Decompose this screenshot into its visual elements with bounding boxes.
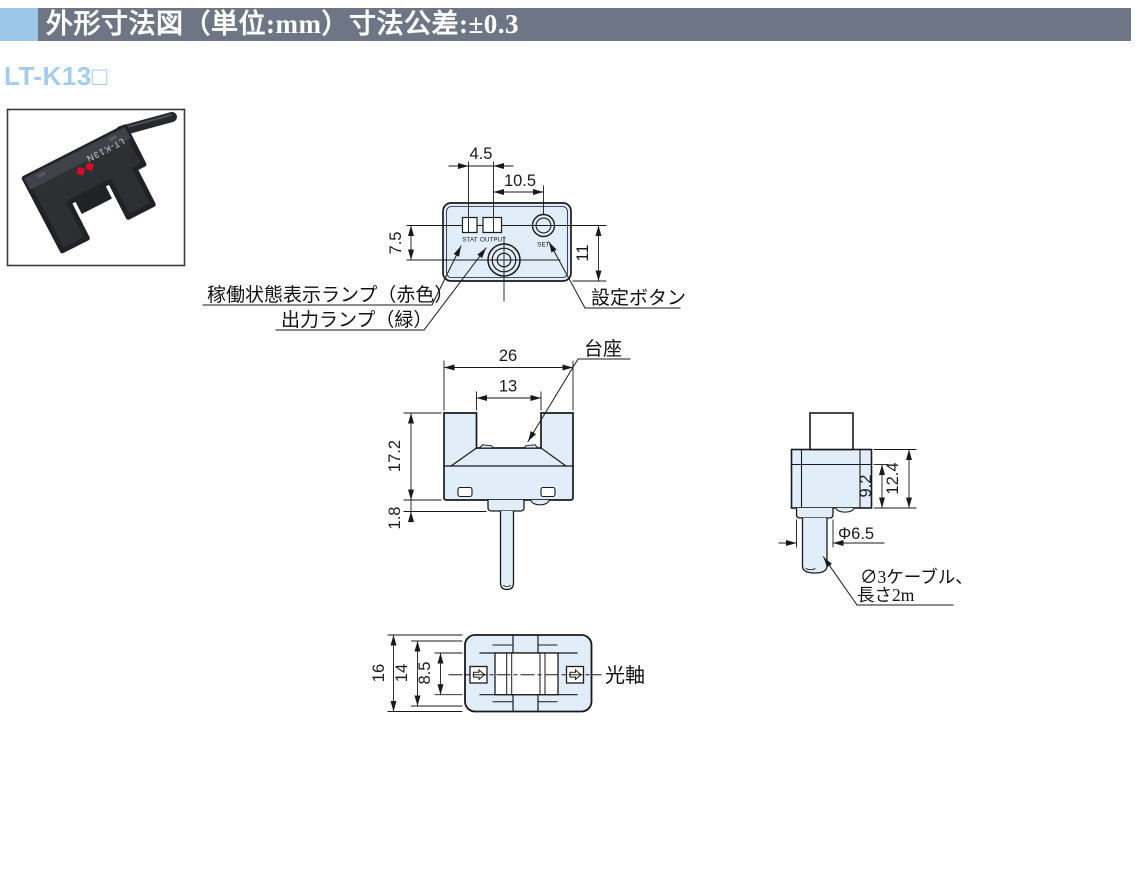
dim-7-5: 7.5 <box>387 232 405 255</box>
label-output-lamp: 出力ランプ（緑） <box>281 309 432 331</box>
mount-slot <box>541 488 555 497</box>
header-accent-square <box>0 8 38 41</box>
stat-text: STAT <box>462 237 477 244</box>
dim-4-5: 4.5 <box>470 145 493 163</box>
product-photo: LT-K13N <box>8 110 185 266</box>
set-text: SET <box>537 242 550 249</box>
bottom-view: 16 14 8.5 光軸 <box>370 635 645 712</box>
dim-9-2: 9.2 <box>857 475 875 498</box>
stat-led <box>463 218 478 233</box>
output-led <box>483 218 502 233</box>
front-view: 26 13 17.2 1.8 台座 <box>386 338 630 590</box>
page: { "header": { "title": "外形寸法図（単位:mm）寸法公差… <box>0 0 1146 877</box>
label-pedestal: 台座 <box>584 338 622 360</box>
dim-11: 11 <box>574 244 592 261</box>
dim-13: 13 <box>499 378 517 396</box>
dim-12-4: 12.4 <box>884 462 902 494</box>
dimension-drawing: LT-K13N STAT OUTPUT SET 4.5 10.5 7.5 <box>0 100 1146 877</box>
dim-1-8: 1.8 <box>386 507 404 530</box>
label-cable-line1: ∅3ケーブル、 <box>860 567 973 587</box>
output-text: OUTPUT <box>480 237 506 244</box>
dim-26: 26 <box>499 347 517 365</box>
dim-17-2: 17.2 <box>386 440 404 472</box>
cable <box>501 511 514 590</box>
dim-diameter: Φ6.5 <box>838 525 874 543</box>
model-heading: LT-K13□ <box>4 61 108 92</box>
label-status-lamp: 稼働状態表示ランプ（赤色） <box>207 284 453 306</box>
dim-14: 14 <box>393 664 411 682</box>
side-view-arm <box>810 413 853 450</box>
slot-channel <box>495 653 558 695</box>
cable <box>803 518 828 573</box>
label-set-button: 設定ボタン <box>591 287 686 309</box>
label-optical-axis: 光軸 <box>605 664 645 687</box>
section-title: 外形寸法図（単位:mm）寸法公差:±0.3 <box>46 8 519 41</box>
side-view: 12.4 9.2 Φ6.5 ∅3ケーブル、 長さ2m <box>779 413 973 605</box>
cable-boss <box>488 500 524 511</box>
pedestal-mark <box>524 445 538 448</box>
pedestal-mark <box>480 445 494 448</box>
mount-slot <box>458 488 472 497</box>
dim-10-5: 10.5 <box>504 172 536 190</box>
dim-8-5: 8.5 <box>416 662 434 685</box>
top-view: STAT OUTPUT SET 4.5 10.5 7.5 11 稼働状態表示ラン… <box>203 145 686 331</box>
label-cable-line2: 長さ2m <box>857 585 915 605</box>
cable-boss <box>797 508 834 518</box>
section-header-bar: 外形寸法図（単位:mm）寸法公差:±0.3 <box>0 8 1131 41</box>
dim-16: 16 <box>370 664 388 682</box>
